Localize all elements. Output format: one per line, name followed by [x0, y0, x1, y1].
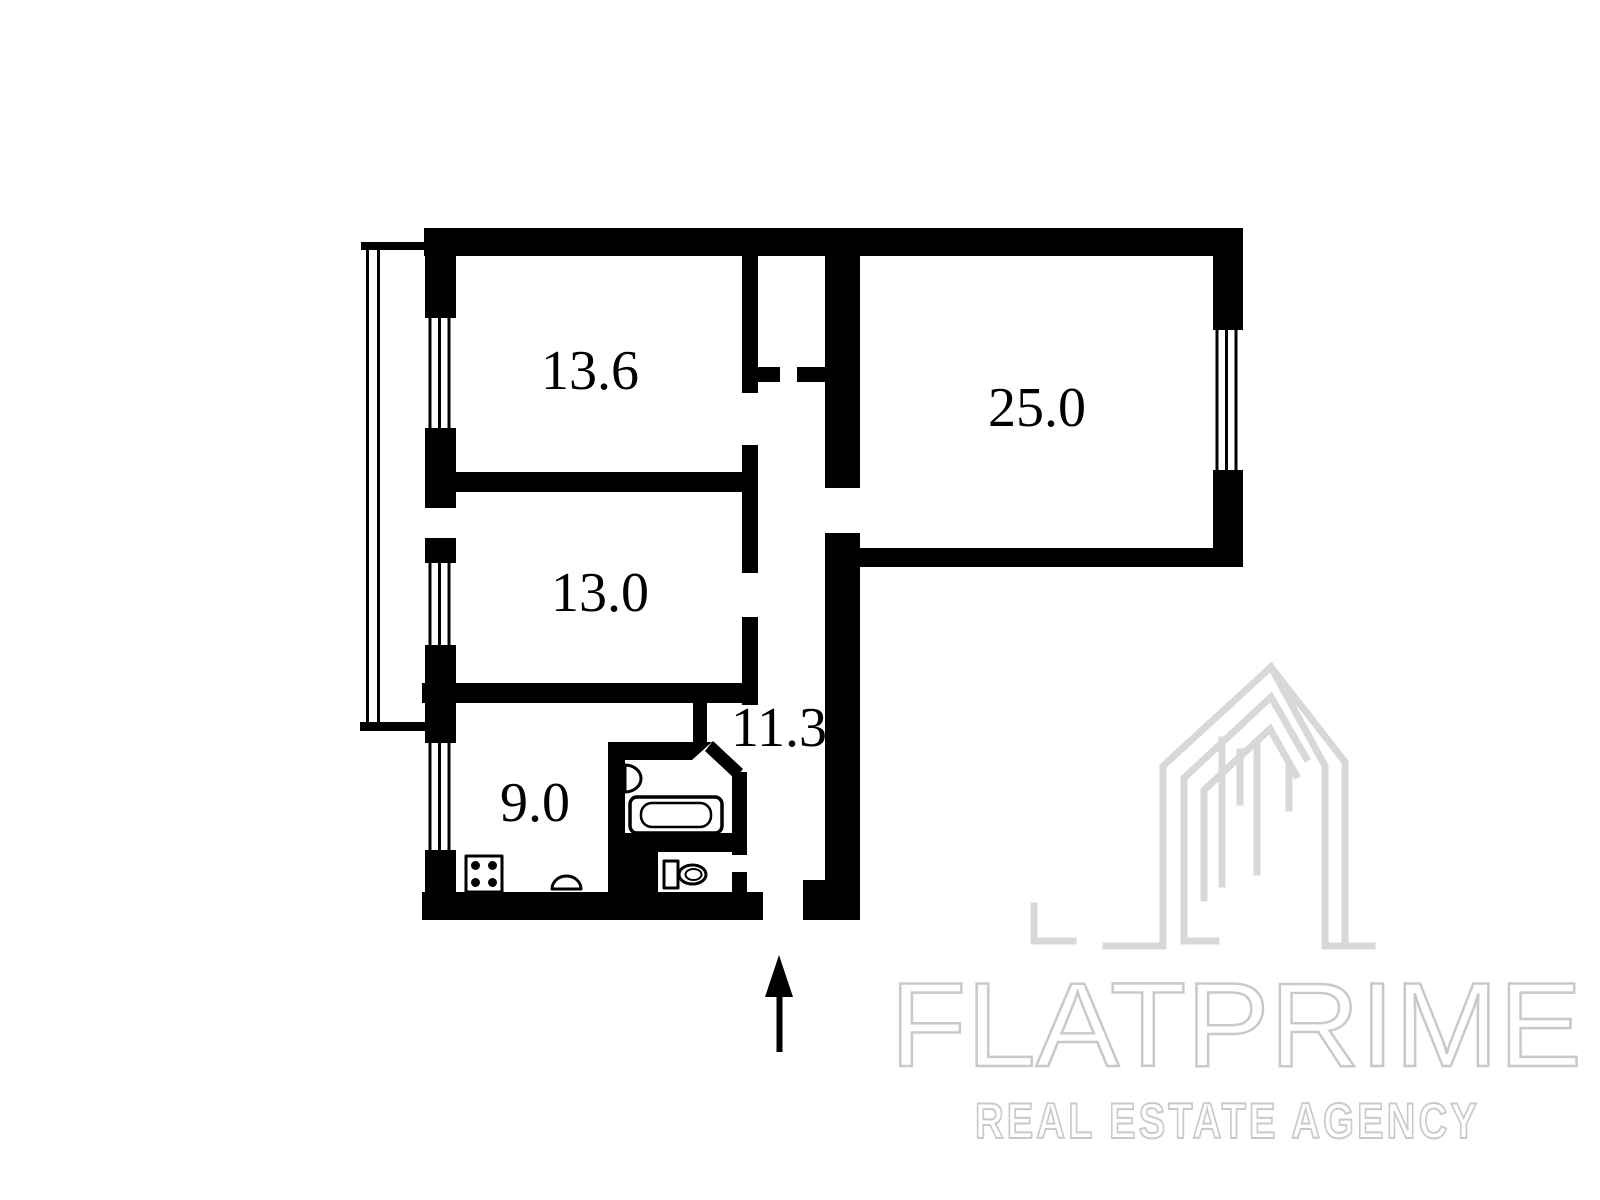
- logo-outline-inner: [1204, 729, 1296, 898]
- wall-wc-left-block: [608, 833, 658, 892]
- entrance-arrow-head: [765, 955, 793, 997]
- window-bedroom-top: [429, 318, 451, 428]
- wall-closet-stub-left: [758, 367, 780, 382]
- window-bar: [438, 563, 441, 645]
- window-bar: [448, 563, 451, 645]
- wall-left-seg3: [425, 538, 456, 563]
- entrance-arrow: [765, 955, 793, 1052]
- window-kitchen: [429, 743, 451, 850]
- window-bar: [429, 318, 432, 428]
- wall-right-seg1: [1213, 228, 1243, 330]
- stove-burner: [488, 861, 497, 870]
- stove-burner: [471, 878, 480, 887]
- stove-body: [466, 856, 502, 892]
- wall-central-upper: [825, 228, 860, 488]
- wall-right-seg2: [1213, 470, 1243, 567]
- wall-bedroom-mid-right-upper: [742, 445, 758, 573]
- toilet-icon: [664, 861, 706, 888]
- stove-burner: [488, 878, 497, 887]
- stove-burner: [471, 861, 480, 870]
- wall-closet-stub-right: [797, 367, 825, 382]
- window-bar: [1235, 330, 1238, 470]
- wall-bath-right: [732, 772, 747, 855]
- window-living: [1216, 330, 1238, 470]
- entrance-arrow-shaft: [777, 990, 783, 1052]
- watermark-building-logo: [1034, 667, 1372, 946]
- floor-plan-canvas: FLATPRIME REAL ESTATE AGENCY: [0, 0, 1600, 1200]
- balcony-rail-inner: [377, 250, 380, 722]
- wall-bottom: [422, 892, 763, 920]
- watermark-tagline-text: REAL ESTATE AGENCY: [975, 1093, 1480, 1149]
- window-bar: [448, 318, 451, 428]
- wall-living-bottom: [860, 548, 1213, 567]
- watermark: FLATPRIME REAL ESTATE AGENCY: [890, 667, 1582, 1149]
- window-bar: [429, 563, 432, 645]
- room-label-living: 25.0: [988, 377, 1086, 439]
- washbasin-icon: [625, 765, 641, 792]
- room-label-bedroom-mid: 13.0: [551, 562, 649, 624]
- room-label-bedroom-top: 13.6: [541, 340, 639, 402]
- window-bar: [1216, 330, 1219, 470]
- wall-left-seg1: [425, 228, 456, 318]
- balcony-cap-top: [361, 242, 425, 250]
- wall-bath-stub: [693, 700, 707, 746]
- balcony-rail-outer: [366, 250, 369, 722]
- window-bar: [438, 318, 441, 428]
- window-bar: [1225, 330, 1228, 470]
- logo-outline-outer: [1106, 667, 1372, 946]
- wall-bedroom-top-right: [742, 228, 758, 393]
- logo-right-face: [1271, 667, 1345, 946]
- balcony-cap-bottom: [360, 722, 425, 731]
- toilet-tank: [664, 861, 678, 888]
- wall-bedroom-mid-bottom: [422, 683, 758, 703]
- room-label-hallway: 11.3: [731, 697, 827, 759]
- window-bedroom-mid: [429, 563, 451, 645]
- bathtub-icon: [630, 797, 722, 833]
- room-label-kitchen: 9.0: [500, 772, 570, 834]
- room-labels: 13.6 25.0 13.0 11.3 9.0: [500, 340, 1086, 834]
- stove-icon: [466, 856, 502, 892]
- watermark-brand-text: FLATPRIME: [890, 958, 1582, 1092]
- balcony: [360, 242, 425, 731]
- wall-left-seg2: [425, 428, 456, 508]
- wall-room-divider: [425, 472, 742, 492]
- kitchen-sink-icon: [552, 876, 581, 889]
- window-bar: [438, 743, 441, 850]
- floor-plan-page: FLATPRIME REAL ESTATE AGENCY: [0, 0, 1600, 1200]
- window-bar: [429, 743, 432, 850]
- walls: [360, 228, 1243, 1052]
- wall-wc-right: [732, 872, 747, 892]
- wall-central-lower: [825, 533, 860, 918]
- window-bar: [448, 743, 451, 850]
- logo-foot-left: [1034, 906, 1073, 941]
